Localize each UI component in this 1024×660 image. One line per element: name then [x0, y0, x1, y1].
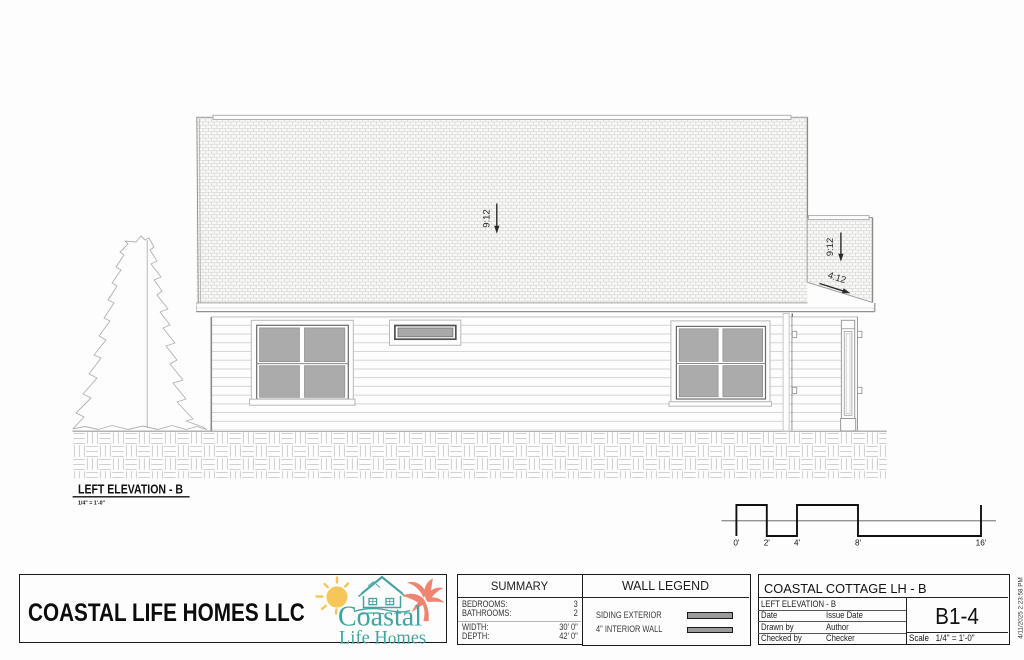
svg-text:16': 16': [976, 539, 987, 548]
svg-text:2': 2': [764, 539, 771, 548]
svg-text:0': 0': [733, 539, 740, 548]
svg-text:1/4" = 1'-0": 1/4" = 1'-0": [78, 501, 105, 507]
svg-text:9:12: 9:12: [825, 238, 836, 257]
svg-text:4': 4': [794, 539, 801, 548]
svg-text:9:12: 9:12: [482, 209, 493, 228]
svg-text:Life Homes: Life Homes: [339, 629, 426, 649]
svg-text:8': 8': [855, 539, 862, 548]
svg-text:LEFT ELEVATION - B: LEFT ELEVATION - B: [78, 482, 183, 496]
